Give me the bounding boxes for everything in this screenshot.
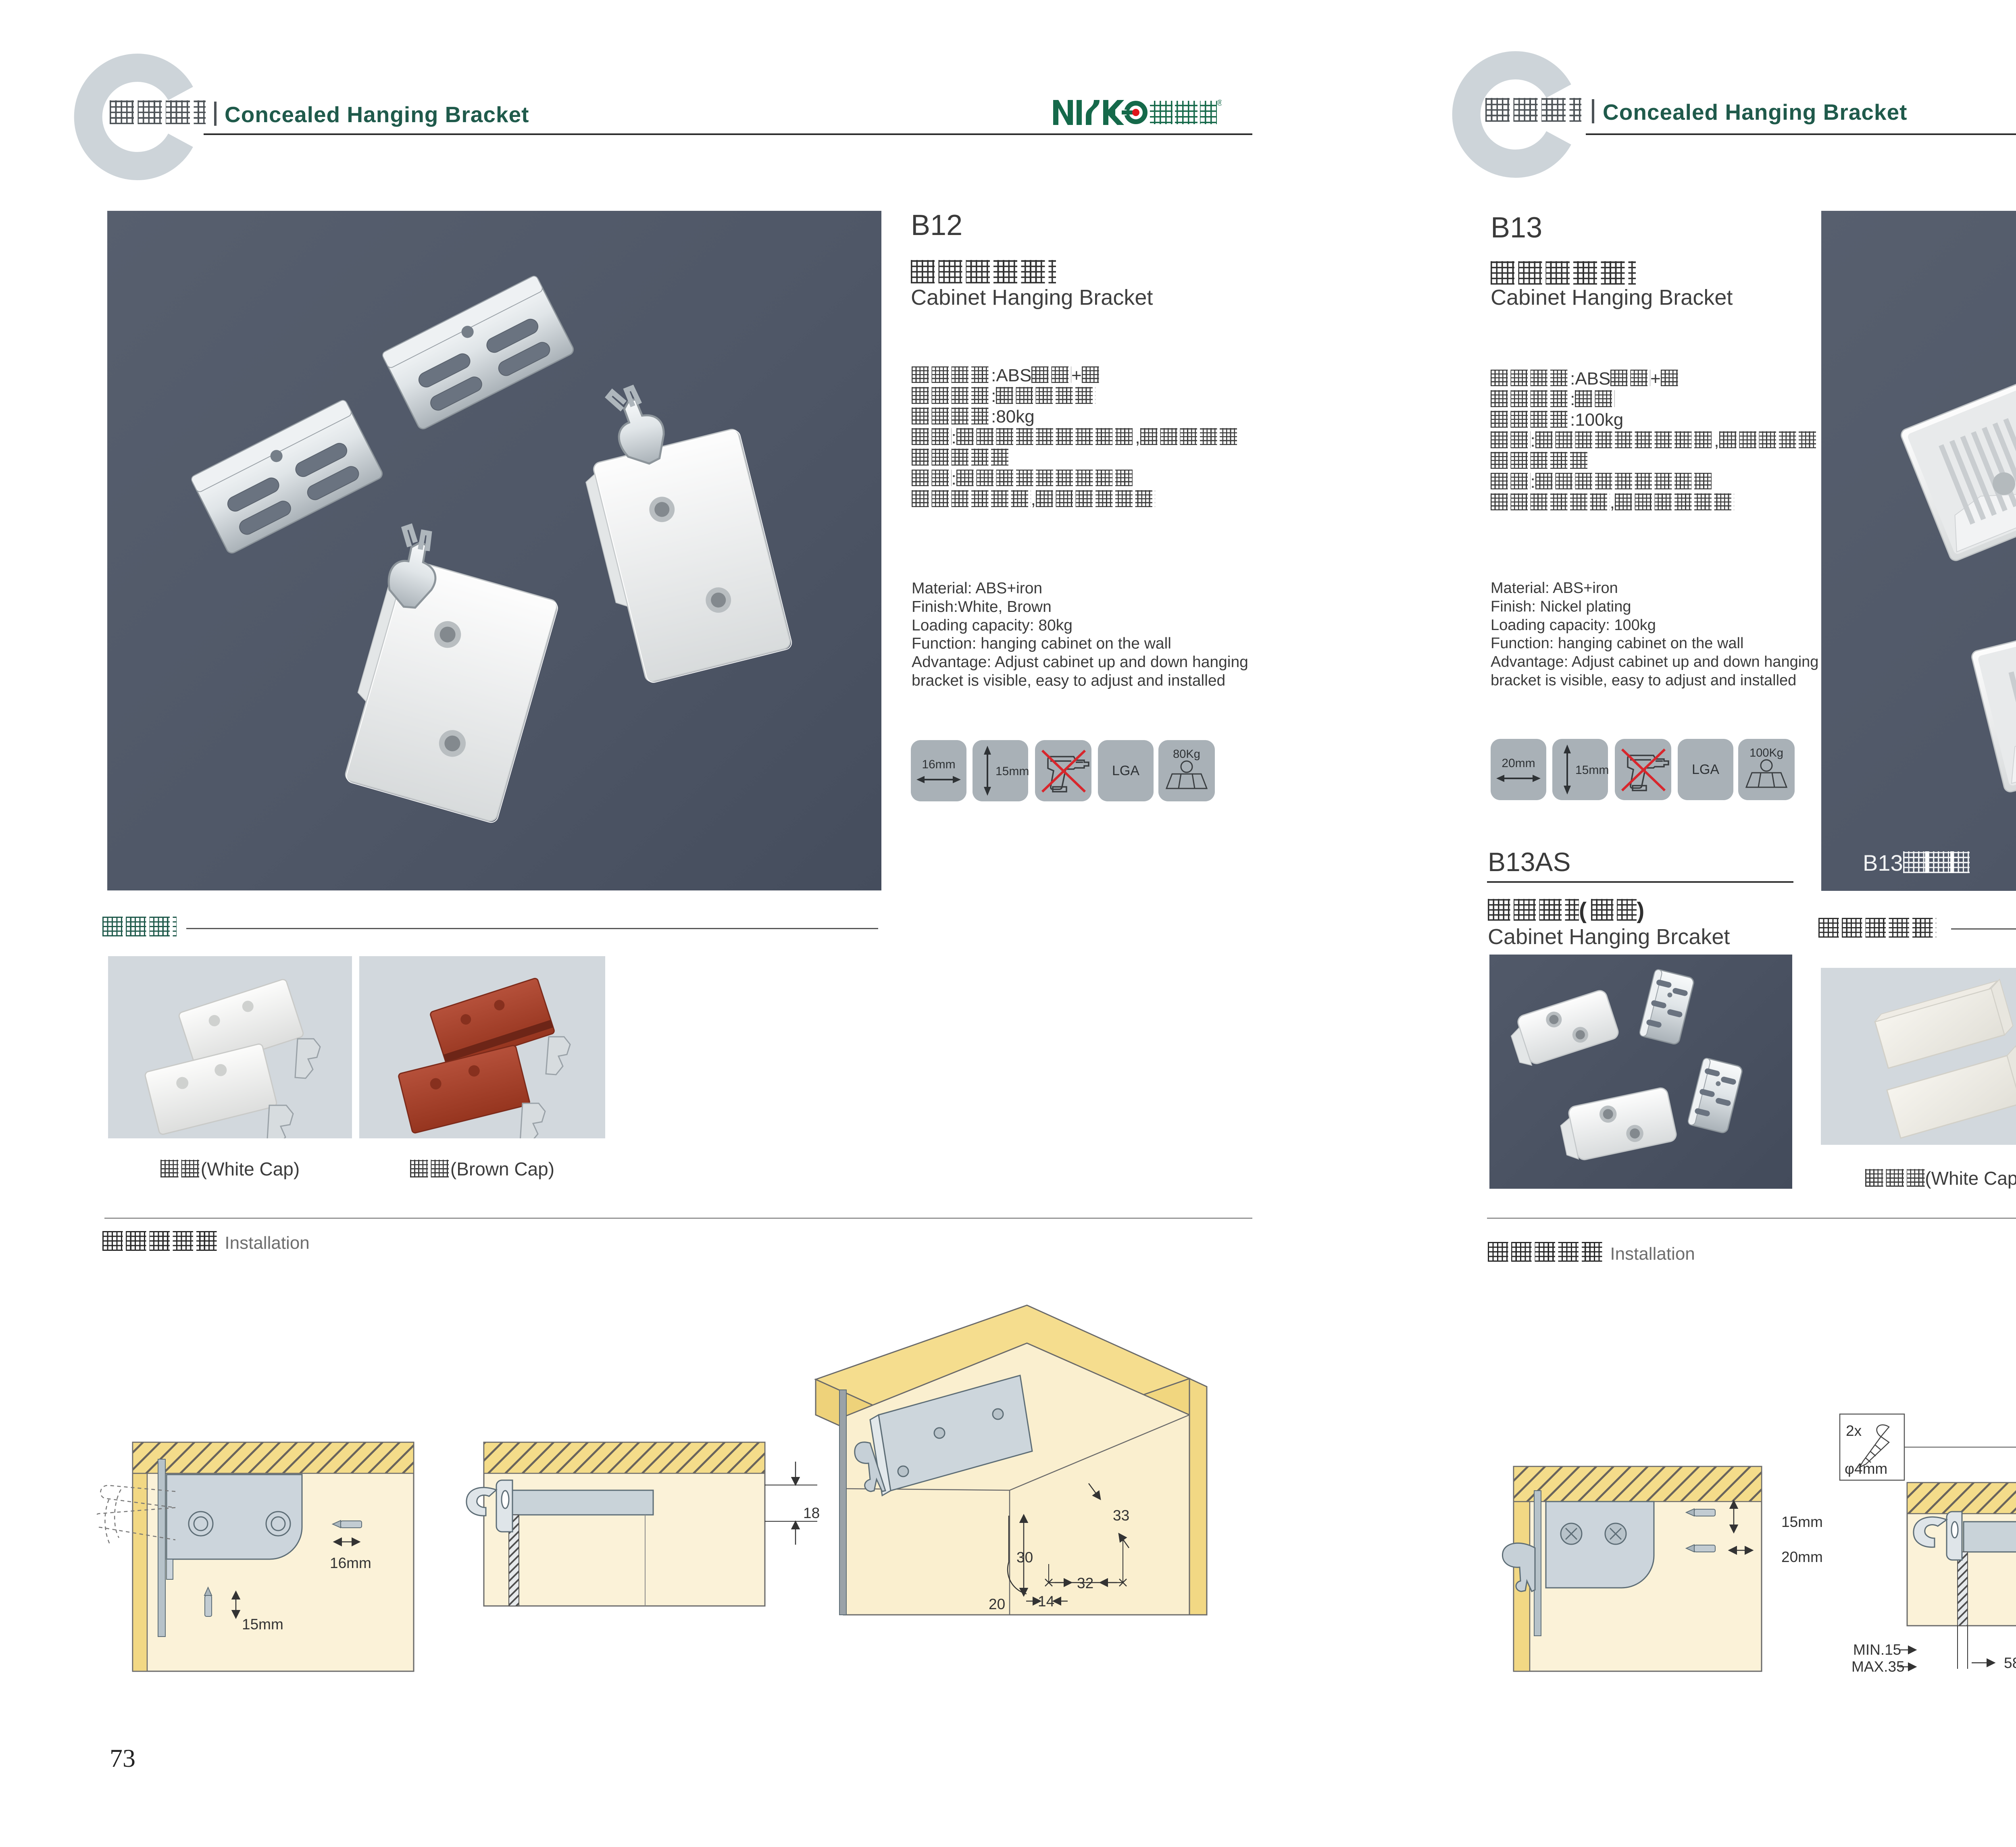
svg-text:20mm: 20mm [1502, 757, 1535, 770]
svg-text:20mm: 20mm [1781, 1549, 1823, 1565]
svg-text:LGA: LGA [1692, 762, 1719, 777]
svg-text:16mm: 16mm [330, 1555, 371, 1571]
svg-text:16mm: 16mm [922, 758, 955, 771]
svg-text:14: 14 [1038, 1593, 1054, 1610]
svg-text:20: 20 [989, 1596, 1005, 1612]
svg-text:φ4mm: φ4mm [1845, 1460, 1887, 1477]
svg-text:15mm: 15mm [996, 765, 1029, 778]
svg-text:LGA: LGA [1112, 763, 1139, 778]
svg-text:80Kg: 80Kg [1173, 748, 1200, 761]
svg-text:2x: 2x [1846, 1423, 1862, 1439]
svg-text:MIN.15: MIN.15 [1853, 1641, 1901, 1658]
svg-text:®: ® [1217, 99, 1222, 108]
svg-text:58: 58 [2004, 1655, 2016, 1671]
svg-text:18: 18 [803, 1505, 820, 1521]
svg-text:100Kg: 100Kg [1749, 747, 1783, 759]
svg-text:30: 30 [1016, 1549, 1033, 1566]
svg-text:15mm: 15mm [1781, 1514, 1823, 1530]
svg-text:33: 33 [1113, 1507, 1129, 1524]
svg-text:15mm: 15mm [1575, 763, 1609, 777]
svg-text:15mm: 15mm [242, 1616, 283, 1633]
svg-text:MAX.35: MAX.35 [1851, 1658, 1905, 1675]
svg-text:32: 32 [1077, 1575, 1093, 1591]
